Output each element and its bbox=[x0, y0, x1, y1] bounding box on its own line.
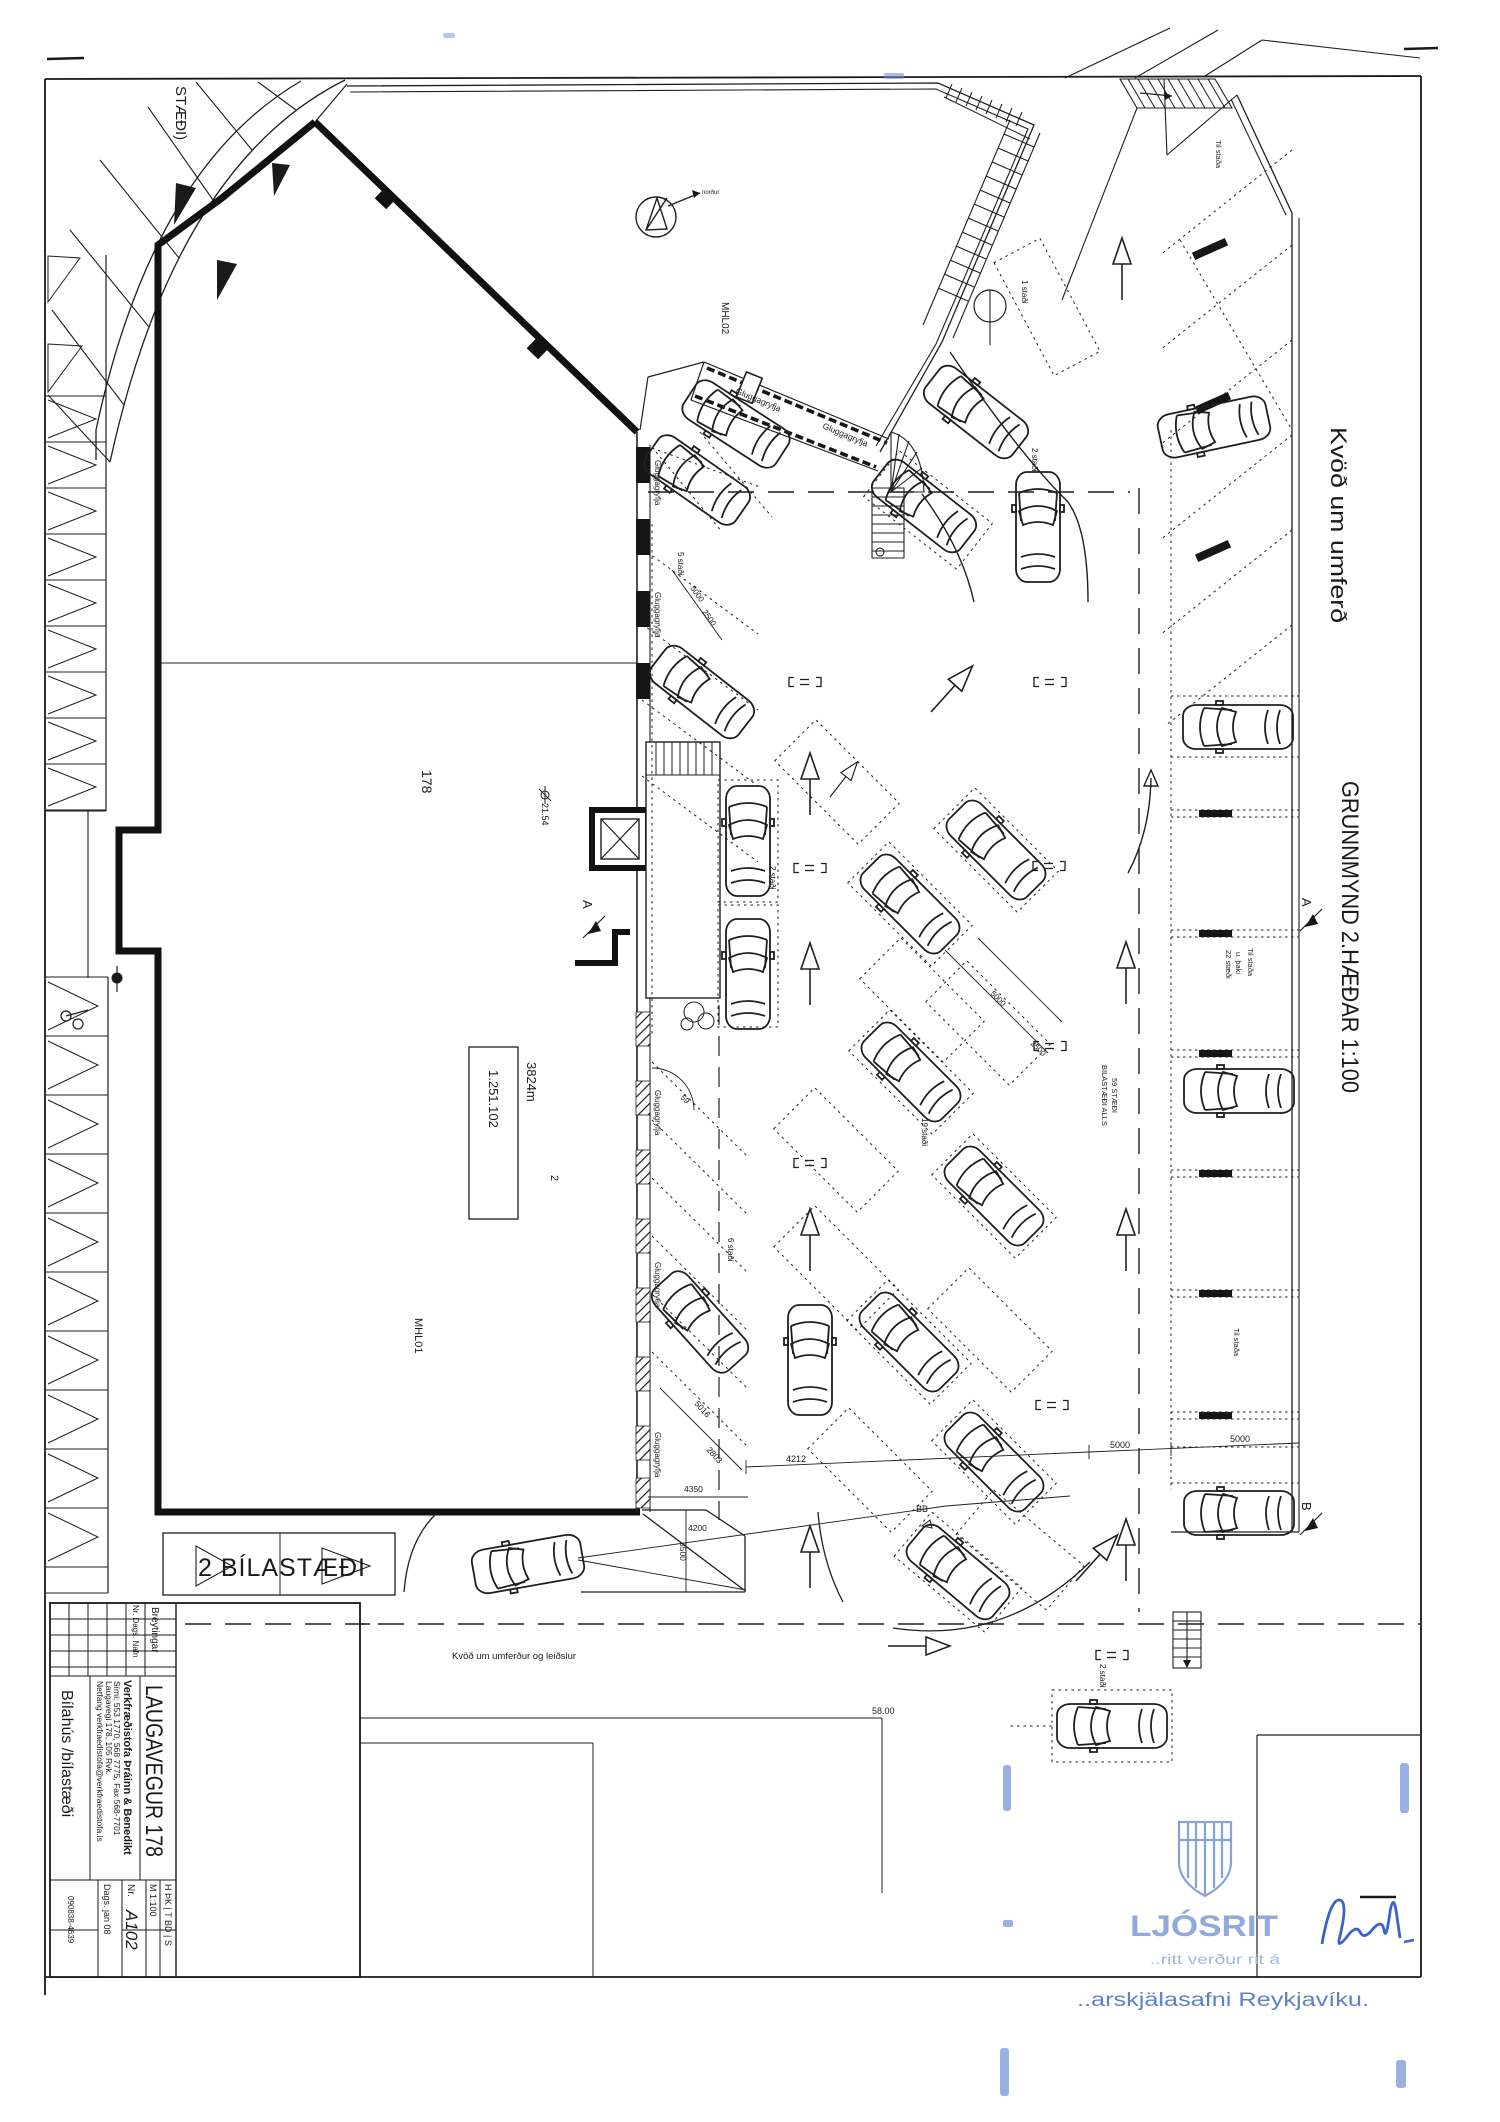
svg-text:BILASTÆÐI ALLS: BILASTÆÐI ALLS bbox=[1100, 1065, 1109, 1126]
svg-text:Gluggagryfja: Gluggagryfja bbox=[653, 592, 662, 638]
svg-text:MHL02: MHL02 bbox=[719, 302, 730, 335]
svg-text:19 staði: 19 staði bbox=[920, 1118, 929, 1146]
svg-text:090838-4639: 090838-4639 bbox=[66, 1896, 75, 1944]
svg-text:2: 2 bbox=[548, 1175, 560, 1181]
svg-text:GRUNNMYND 2.HÆÐAR 1:100: GRUNNMYND 2.HÆÐAR 1:100 bbox=[1336, 781, 1363, 1093]
svg-text:LAUGAVEGUR 178: LAUGAVEGUR 178 bbox=[140, 1685, 167, 1857]
svg-text:norður: norður bbox=[702, 189, 719, 196]
svg-text:..ritt verður rit á: ..ritt verður rit á bbox=[1150, 1951, 1280, 1967]
svg-text:2 BÍLASTÆÐI: 2 BÍLASTÆÐI bbox=[198, 1553, 366, 1582]
svg-text:1.251.102: 1.251.102 bbox=[486, 1070, 501, 1128]
svg-text:Netfang verkfraedistofa@verk: Netfang verkfraedistofa@verkfraedistofa.… bbox=[95, 1681, 105, 1842]
svg-text:3824m: 3824m bbox=[524, 1062, 539, 1102]
svg-text:4350: 4350 bbox=[684, 1484, 703, 1494]
svg-text:Til staða: Til staða bbox=[1246, 948, 1255, 977]
svg-text:M 1:100: M 1:100 bbox=[148, 1884, 158, 1917]
svg-text:21.54: 21.54 bbox=[540, 803, 550, 826]
svg-text:178: 178 bbox=[419, 770, 435, 794]
svg-text:B: B bbox=[1299, 1502, 1314, 1511]
svg-text:Nr.: Nr. bbox=[125, 1884, 136, 1897]
svg-text:4200: 4200 bbox=[688, 1523, 707, 1533]
svg-text:2 staði: 2 staði bbox=[768, 866, 777, 890]
svg-text:22 stæði: 22 stæði bbox=[1224, 950, 1233, 979]
svg-text:5000: 5000 bbox=[1110, 1440, 1130, 1450]
svg-text:4212: 4212 bbox=[786, 1454, 806, 1464]
svg-text:5000: 5000 bbox=[1230, 1434, 1250, 1444]
svg-text:Til staða: Til staða bbox=[1214, 140, 1223, 169]
svg-text:58.00: 58.00 bbox=[872, 1706, 895, 1716]
svg-text:6 staði: 6 staði bbox=[726, 1238, 735, 1262]
svg-text:A: A bbox=[1299, 898, 1314, 907]
svg-text:2 staði: 2 staði bbox=[1030, 448, 1039, 472]
svg-text:STÆÐI): STÆÐI) bbox=[172, 86, 189, 140]
svg-text:H ÞK | T BD | S: H ÞK | T BD | S bbox=[163, 1884, 173, 1946]
svg-text:Kvöð um umferður og leiðsl: Kvöð um umferður og leiðslur bbox=[452, 1651, 576, 1662]
svg-text:Bílahús /bílastæði: Bílahús /bílastæði bbox=[58, 1690, 75, 1817]
svg-text:LJÓSRIT: LJÓSRIT bbox=[1130, 1909, 1278, 1943]
svg-text:Gluggagryfja: Gluggagryfja bbox=[653, 1262, 662, 1308]
svg-text:Dags. jan 08: Dags. jan 08 bbox=[102, 1884, 112, 1935]
svg-text:Breytingar: Breytingar bbox=[149, 1607, 160, 1653]
svg-text:A: A bbox=[580, 900, 595, 909]
svg-text:Nr. Dags. Nafn: Nr. Dags. Nafn bbox=[131, 1605, 140, 1657]
svg-text:Gluggagryfja: Gluggagryfja bbox=[653, 1090, 662, 1136]
svg-text:Til staða: Til staða bbox=[1232, 1328, 1241, 1357]
svg-text:59 STÆÐI: 59 STÆÐI bbox=[1110, 1078, 1119, 1113]
svg-text:MHL01: MHL01 bbox=[412, 1318, 424, 1353]
svg-text:Sími: 553 1770, 568 7775, Fa: Sími: 553 1770, 568 7775, Fax 568-7701 bbox=[112, 1681, 122, 1836]
svg-text:u. þaki: u. þaki bbox=[1234, 952, 1243, 974]
svg-text:A102: A102 bbox=[122, 1909, 141, 1950]
svg-text:..arskjälasafni Reykjavíku.: ..arskjälasafni Reykjavíku. bbox=[1077, 1990, 1369, 2011]
svg-text:5 staði: 5 staði bbox=[676, 552, 685, 576]
svg-text:2 staði: 2 staði bbox=[1098, 1664, 1107, 1688]
svg-text:Gluggagryfja: Gluggagryfja bbox=[653, 1432, 662, 1478]
svg-text:Kvöð um umferð: Kvöð um umferð bbox=[1326, 427, 1351, 623]
svg-text:1 staði: 1 staði bbox=[1020, 280, 1029, 304]
